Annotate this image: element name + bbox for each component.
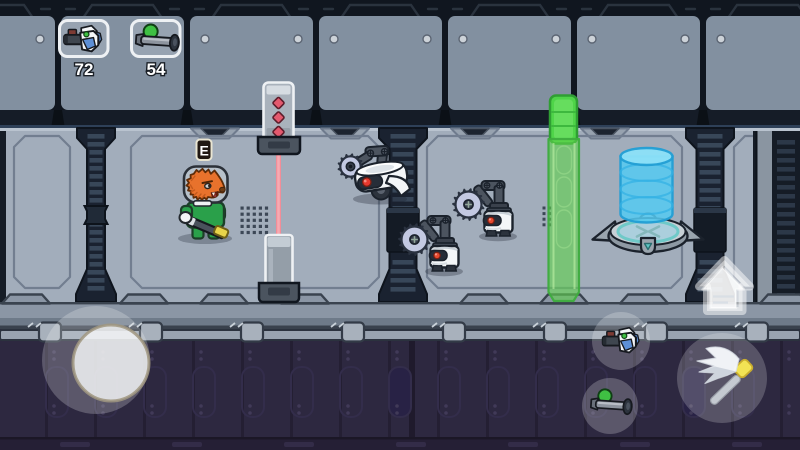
svg-text:54: 54 <box>147 60 166 79</box>
svg-text:E: E <box>200 142 209 158</box>
svg-text:72: 72 <box>75 60 94 79</box>
